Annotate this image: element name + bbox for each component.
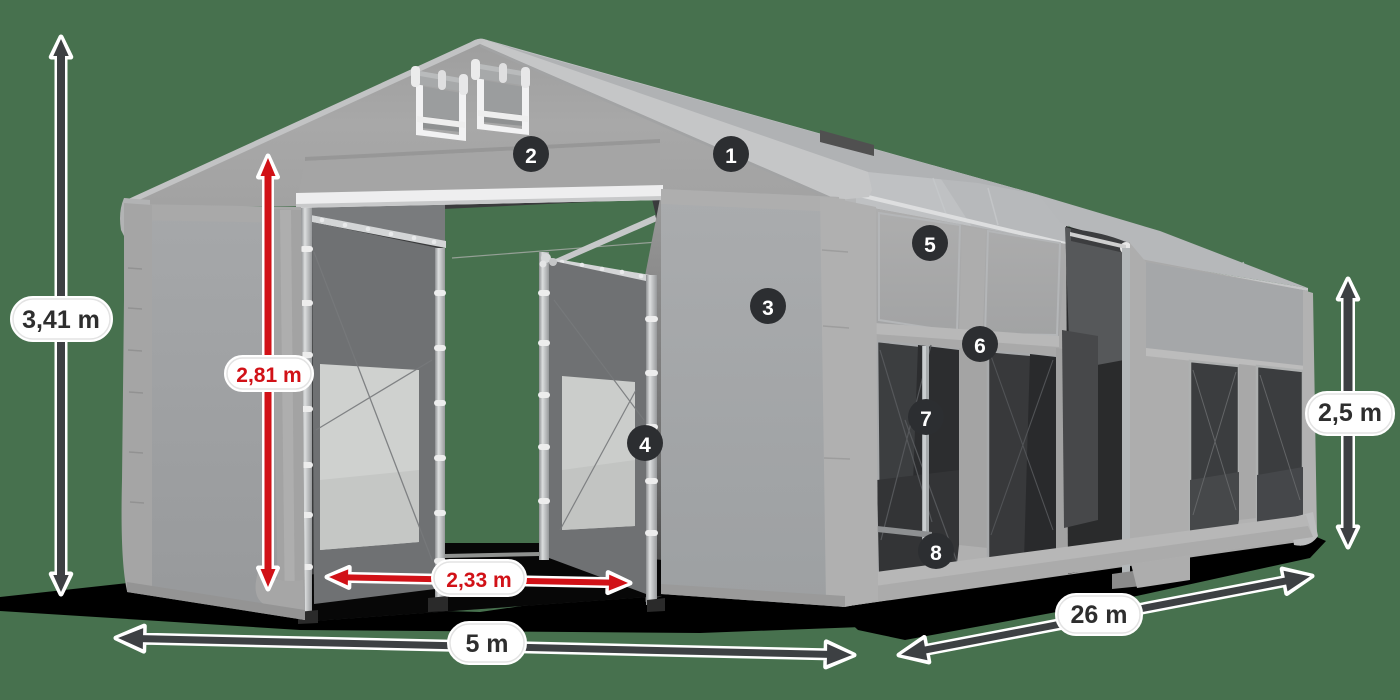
svg-text:6: 6 bbox=[974, 335, 986, 358]
svg-text:2,5 m: 2,5 m bbox=[1318, 399, 1382, 427]
svg-text:3,41 m: 3,41 m bbox=[22, 306, 100, 334]
svg-text:4: 4 bbox=[639, 434, 651, 457]
svg-text:8: 8 bbox=[930, 542, 942, 565]
svg-text:7: 7 bbox=[920, 408, 932, 431]
svg-text:5: 5 bbox=[924, 234, 936, 257]
svg-text:26 m: 26 m bbox=[1071, 601, 1128, 629]
svg-text:1: 1 bbox=[725, 145, 737, 168]
svg-text:2,33 m: 2,33 m bbox=[446, 569, 511, 592]
svg-text:5 m: 5 m bbox=[465, 630, 508, 658]
svg-text:3: 3 bbox=[762, 297, 774, 320]
svg-text:2,81 m: 2,81 m bbox=[236, 364, 301, 387]
svg-text:2: 2 bbox=[525, 145, 537, 168]
